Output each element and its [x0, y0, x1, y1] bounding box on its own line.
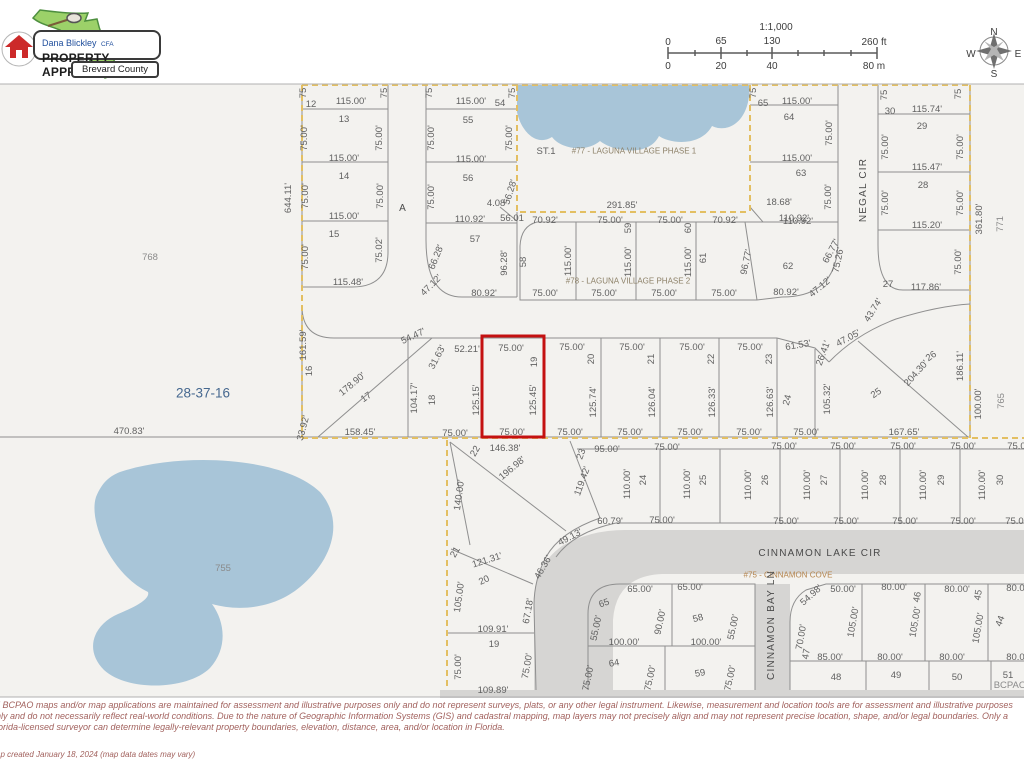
- map-label: 75.00': [737, 342, 763, 353]
- map-label: 100.00': [973, 388, 984, 419]
- map-label: 80.00': [944, 584, 970, 595]
- map-label: 23: [764, 354, 775, 365]
- map-label: 62: [783, 261, 794, 272]
- map-label: 80.92': [471, 288, 497, 299]
- map-label: 130: [764, 36, 781, 47]
- map-label: 75.00': [950, 441, 976, 452]
- house-icon-door: [16, 50, 22, 58]
- map-label: 109.91': [478, 624, 509, 635]
- map-label: 126.63': [765, 386, 776, 417]
- map-label: 768: [142, 252, 158, 263]
- map-label: 75.00': [824, 120, 835, 146]
- map-label: 52.21': [454, 344, 480, 355]
- map-label: 110.00': [743, 470, 754, 500]
- map-label: 115.74': [912, 104, 942, 115]
- map-label: W: [966, 49, 976, 60]
- map-label: 56.01: [500, 213, 524, 224]
- map-label: 75: [879, 90, 890, 101]
- map-label: BCPAO: [994, 680, 1024, 691]
- map-label: 27: [883, 279, 894, 290]
- map-label: 45: [972, 589, 985, 601]
- map-label: 80.92': [773, 287, 799, 298]
- county-label: Brevard County: [71, 61, 159, 78]
- map-label: 70.92': [532, 215, 558, 226]
- map-created-date: ap created January 18, 2024 (map data da…: [0, 750, 1024, 759]
- map-label: 64: [784, 112, 795, 123]
- map-label: 18.68': [766, 197, 792, 208]
- map-label: 75: [424, 88, 435, 99]
- map-label: 186.11': [955, 351, 966, 381]
- map-label: 75.00': [880, 134, 891, 160]
- map-label: 158.45': [345, 427, 376, 438]
- map-label: 125.74': [588, 386, 599, 417]
- map-label: 95.00': [594, 444, 620, 455]
- map-label: 27: [819, 475, 830, 486]
- map-label: 47: [800, 648, 813, 660]
- map-label: 75.00': [823, 184, 834, 210]
- map-label: 75.00': [736, 427, 762, 438]
- map-label: 15: [329, 229, 340, 240]
- map-label: 75.00': [679, 342, 705, 353]
- map-label: #77 - LAGUNA VILLAGE PHASE 1: [572, 147, 697, 156]
- map-label: 80.00': [1006, 583, 1024, 594]
- map-label: 75.00': [557, 427, 583, 438]
- map-label: 75.00': [677, 427, 703, 438]
- map-label: 50: [952, 672, 963, 683]
- map-label: 75.00': [1007, 441, 1024, 452]
- map-label: 20: [715, 61, 727, 72]
- map-label: 75.00': [374, 125, 385, 151]
- map-label: 28: [878, 475, 889, 486]
- map-label: 96.28': [499, 250, 510, 276]
- map-label: 56: [463, 173, 474, 184]
- bcpao-map-page: 1:1,000065130260 ft0204080 mNWSE75757575…: [0, 0, 1024, 768]
- map-label: 63: [796, 168, 807, 179]
- map-label: 29: [936, 475, 947, 486]
- map-label: 75.00': [591, 288, 617, 299]
- map-label: 115.00': [623, 247, 634, 277]
- map-label: 28-37-16: [176, 385, 230, 400]
- map-label: 75.00': [1005, 516, 1024, 527]
- map-label: 40: [766, 61, 778, 72]
- map-label: 146.38': [490, 443, 521, 454]
- map-label: 58: [518, 257, 529, 268]
- map-label: 75.00': [654, 442, 680, 453]
- map-label: 110.00': [622, 469, 633, 499]
- map-label: 126.04': [647, 386, 658, 417]
- map-label: 75.00': [619, 342, 645, 353]
- map-label: 65: [758, 98, 769, 109]
- map-label: 115.00': [456, 154, 486, 165]
- map-label: 75.00': [504, 125, 515, 151]
- map-label: E: [1015, 49, 1022, 60]
- map-label: 105.32': [822, 383, 833, 414]
- map-label: 22: [706, 354, 717, 365]
- map-label: 75.00': [300, 244, 311, 270]
- map-label: 75.00': [453, 654, 464, 680]
- map-label: 60.79': [597, 516, 623, 527]
- map-label: 75.00': [426, 125, 437, 151]
- map-label: 24: [638, 475, 649, 486]
- map-label: 115.00': [329, 153, 359, 164]
- map-label: 29: [917, 121, 928, 132]
- map-label: 50.00': [830, 584, 856, 595]
- map-label: 75.00': [892, 516, 918, 527]
- map-label: 75.00': [442, 428, 468, 439]
- map-label: 46: [911, 591, 924, 603]
- map-label: 291.85': [607, 200, 638, 211]
- appraiser-credential: CFA: [101, 41, 114, 48]
- map-label: 361.80': [974, 203, 985, 234]
- map-label: 100.00': [691, 637, 722, 648]
- map-label: 115.00': [683, 247, 694, 277]
- map-label: 110.00': [860, 470, 871, 500]
- map-label: 110.92': [455, 214, 485, 225]
- map-label: 115.00': [782, 153, 812, 164]
- map-label: 115.00': [329, 211, 359, 222]
- map-label: 14: [339, 171, 350, 182]
- map-label: 75.00': [426, 184, 437, 210]
- map-label: 75.00': [657, 215, 683, 226]
- map-label: 75.00': [771, 441, 797, 452]
- map-label: 125.45': [528, 384, 539, 415]
- scale-bar: [668, 47, 877, 59]
- map-label: 75.00': [793, 427, 819, 438]
- map-label: 26: [760, 475, 771, 486]
- map-label: 19: [529, 357, 540, 368]
- map-label: 75: [507, 88, 518, 99]
- map-label: 115.47': [912, 162, 942, 173]
- map-label: 110.00': [802, 470, 813, 500]
- map-label: 75.00': [499, 427, 525, 438]
- map-label: 75: [748, 88, 759, 99]
- appraiser-name: Dana Blickley: [42, 38, 97, 48]
- disclaimer-line-1: ll BCPAO maps and/or map applications ar…: [0, 700, 1024, 710]
- map-label: 60: [683, 223, 694, 234]
- map-label: 75.00': [880, 190, 891, 216]
- property-appraiser-logo: Dana Blickley CFA PROPERTY APPRAISER: [33, 30, 161, 60]
- map-label: 75: [953, 89, 964, 100]
- map-label: 65: [715, 36, 727, 47]
- map-label: 115.00': [456, 96, 486, 107]
- map-label: 1:1,000: [759, 22, 793, 33]
- map-label: 75.00': [890, 441, 916, 452]
- map-label: 100.00': [609, 637, 640, 648]
- map-label: 75.00': [955, 134, 966, 160]
- map-label: 75.00': [833, 516, 859, 527]
- map-label: 16: [304, 366, 315, 377]
- map-label: 75.00': [955, 190, 966, 216]
- map-label: ST.1: [536, 146, 555, 157]
- map-label: 0: [665, 37, 671, 48]
- map-label: 644.11': [283, 183, 294, 213]
- map-label: 57: [470, 234, 481, 245]
- map-label: 49: [891, 670, 902, 681]
- map-label: 470.83': [114, 426, 145, 437]
- map-label: 64: [608, 657, 620, 670]
- map-label: S: [991, 69, 998, 80]
- map-label: 55: [463, 115, 474, 126]
- map-label: 765: [996, 393, 1007, 409]
- map-label: 75: [298, 88, 309, 99]
- map-label: 75.00': [559, 342, 585, 353]
- map-label: 110.92': [779, 213, 809, 224]
- map-label: 65.00': [677, 582, 703, 593]
- map-label: 167.65': [889, 427, 920, 438]
- map-label: 75: [379, 88, 390, 99]
- map-label: 104.17': [409, 382, 420, 413]
- map-label: 75.00': [711, 288, 737, 299]
- map-label: 115.00': [782, 96, 812, 107]
- map-label: 75.00': [649, 515, 675, 526]
- map-label: 115.48': [333, 277, 363, 288]
- map-label: CINNAMON BAY LN: [766, 570, 777, 680]
- map-label: CINNAMON LAKE CIR: [758, 548, 881, 559]
- map-label: 20: [586, 354, 597, 365]
- map-label: 59: [623, 223, 634, 234]
- map-label: 59: [694, 667, 706, 680]
- map-label: 18: [427, 395, 438, 406]
- map-label: 75.00': [375, 183, 386, 209]
- map-label: 110.00': [977, 470, 988, 500]
- map-label: 75.00': [953, 249, 964, 275]
- map-label: 75.00': [597, 215, 623, 226]
- map-canvas[interactable]: 1:1,000065130260 ft0204080 mNWSE75757575…: [0, 0, 1024, 768]
- map-label: 21: [646, 354, 657, 365]
- disclaimer-line-3: lorida-licensed surveyor can determine l…: [0, 722, 1024, 732]
- map-label: 75.00': [617, 427, 643, 438]
- map-label: 260 ft: [861, 37, 886, 48]
- map-label: 125.15': [471, 384, 482, 415]
- map-label: 70.92': [712, 215, 738, 226]
- map-label: 75.00': [773, 516, 799, 527]
- map-label: #75 - CINNAMON COVE: [744, 571, 833, 580]
- map-label: 12: [306, 99, 317, 110]
- house-icon-roof: [5, 35, 33, 47]
- compass-icon: [976, 33, 1012, 69]
- map-label: 115.00': [563, 246, 574, 276]
- map-label: 161.59': [298, 329, 309, 360]
- map-label: 771: [995, 216, 1006, 232]
- map-label: 19: [489, 639, 500, 650]
- map-label: 30: [885, 106, 896, 117]
- map-label: 54: [495, 98, 506, 109]
- map-label: 126.33': [707, 386, 718, 417]
- map-label: 75.02': [374, 237, 385, 263]
- map-label: 65.00': [627, 584, 653, 595]
- map-label: N: [990, 27, 997, 38]
- map-label: 75.00': [299, 125, 310, 151]
- map-label: 110.00': [682, 469, 693, 499]
- map-label: 115.00': [336, 96, 366, 107]
- map-label: 85.00': [817, 652, 843, 663]
- map-label: 75.00': [300, 183, 311, 209]
- map-label: 25: [698, 475, 709, 486]
- map-label: 80.00': [881, 582, 907, 593]
- map-label: 4.08': [487, 198, 507, 209]
- map-label: 0: [665, 61, 671, 72]
- map-label: 75.00': [950, 516, 976, 527]
- map-label: 61: [698, 253, 709, 264]
- map-label: NEGAL CIR: [858, 158, 869, 222]
- map-label: 75.00': [532, 288, 558, 299]
- map-label: 28: [918, 180, 929, 191]
- map-label: #78 - LAGUNA VILLAGE PHASE 2: [566, 277, 691, 286]
- map-label: 80.00': [939, 652, 965, 663]
- map-label: 80.00': [877, 652, 903, 663]
- map-label: 80.00': [1006, 652, 1024, 663]
- map-label: 117.86': [911, 282, 941, 293]
- map-label: 109.89': [478, 685, 509, 696]
- map-label: 48: [831, 672, 842, 683]
- map-label: A: [399, 203, 407, 214]
- map-label: 110.00': [918, 470, 929, 500]
- map-label: 75.00': [830, 441, 856, 452]
- disclaimer-line-2: nly and do not necessarily reflect real-…: [0, 711, 1024, 721]
- magnifier-lens: [67, 14, 81, 23]
- map-label: 30: [995, 475, 1006, 486]
- map-label: 80 m: [863, 61, 885, 72]
- map-label: 75.00': [498, 343, 524, 354]
- map-label: 115.20': [912, 220, 942, 231]
- map-label: 75.00': [651, 288, 677, 299]
- map-label: 13: [339, 114, 350, 125]
- map-label: 755: [215, 563, 231, 574]
